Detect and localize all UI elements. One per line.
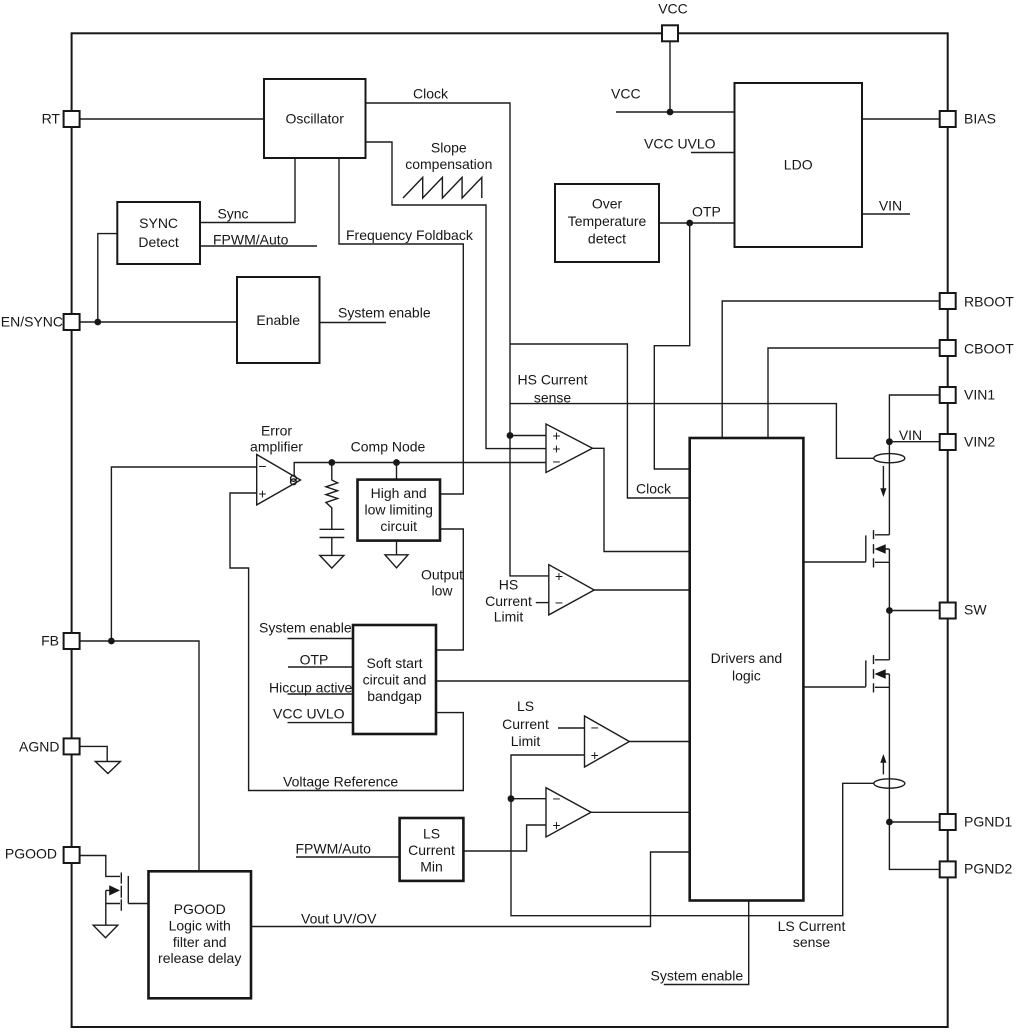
svg-text:VIN1: VIN1 — [964, 387, 995, 403]
svg-text:Oscillator: Oscillator — [286, 111, 345, 127]
svg-text:Enable: Enable — [256, 312, 300, 328]
svg-text:System enable: System enable — [259, 620, 352, 636]
svg-text:Sync: Sync — [217, 206, 248, 222]
svg-text:LDO: LDO — [784, 157, 813, 173]
svg-text:Clock: Clock — [413, 86, 449, 102]
svg-text:PGND1: PGND1 — [964, 814, 1012, 830]
svg-text:+: + — [258, 485, 266, 501]
svg-text:SW: SW — [964, 602, 987, 618]
svg-text:FPWM/Auto: FPWM/Auto — [213, 232, 289, 248]
svg-text:Vout UV/OV: Vout UV/OV — [301, 911, 377, 927]
svg-text:−: − — [258, 458, 266, 474]
svg-text:FPWM/Auto: FPWM/Auto — [296, 841, 372, 857]
svg-text:System enable: System enable — [338, 305, 431, 321]
svg-text:VIN: VIN — [899, 427, 922, 443]
svg-text:VCC UVLO: VCC UVLO — [273, 706, 345, 722]
svg-text:VIN: VIN — [879, 198, 902, 214]
svg-text:Soft startcircuit andbandgap: Soft startcircuit andbandgap — [363, 655, 427, 704]
svg-text:VCC: VCC — [611, 86, 641, 102]
svg-text:Clock: Clock — [636, 481, 672, 497]
svg-text:OTP: OTP — [300, 652, 329, 668]
svg-text:Voltage Reference: Voltage Reference — [283, 774, 398, 790]
svg-text:AGND: AGND — [19, 739, 59, 755]
svg-text:RT: RT — [42, 111, 61, 127]
svg-text:VCC UVLO: VCC UVLO — [644, 136, 716, 152]
svg-text:VCC: VCC — [658, 1, 688, 17]
svg-text:OTP: OTP — [692, 204, 721, 220]
svg-text:EN/SYNC: EN/SYNC — [1, 314, 63, 330]
svg-text:BIAS: BIAS — [964, 111, 996, 127]
svg-text:RBOOT: RBOOT — [964, 294, 1014, 310]
svg-text:FB: FB — [41, 633, 59, 649]
svg-text:Hiccup active: Hiccup active — [269, 680, 352, 696]
svg-text:System enable: System enable — [651, 968, 744, 984]
svg-text:VIN2: VIN2 — [964, 434, 995, 450]
svg-text:++−: ++− — [552, 428, 560, 470]
svg-text:PGND2: PGND2 — [964, 861, 1012, 877]
svg-text:Frequency Foldback: Frequency Foldback — [346, 227, 474, 243]
svg-text:Comp Node: Comp Node — [351, 439, 426, 455]
svg-text:PGOOD: PGOOD — [5, 846, 57, 862]
svg-text:CBOOT: CBOOT — [964, 341, 1014, 357]
